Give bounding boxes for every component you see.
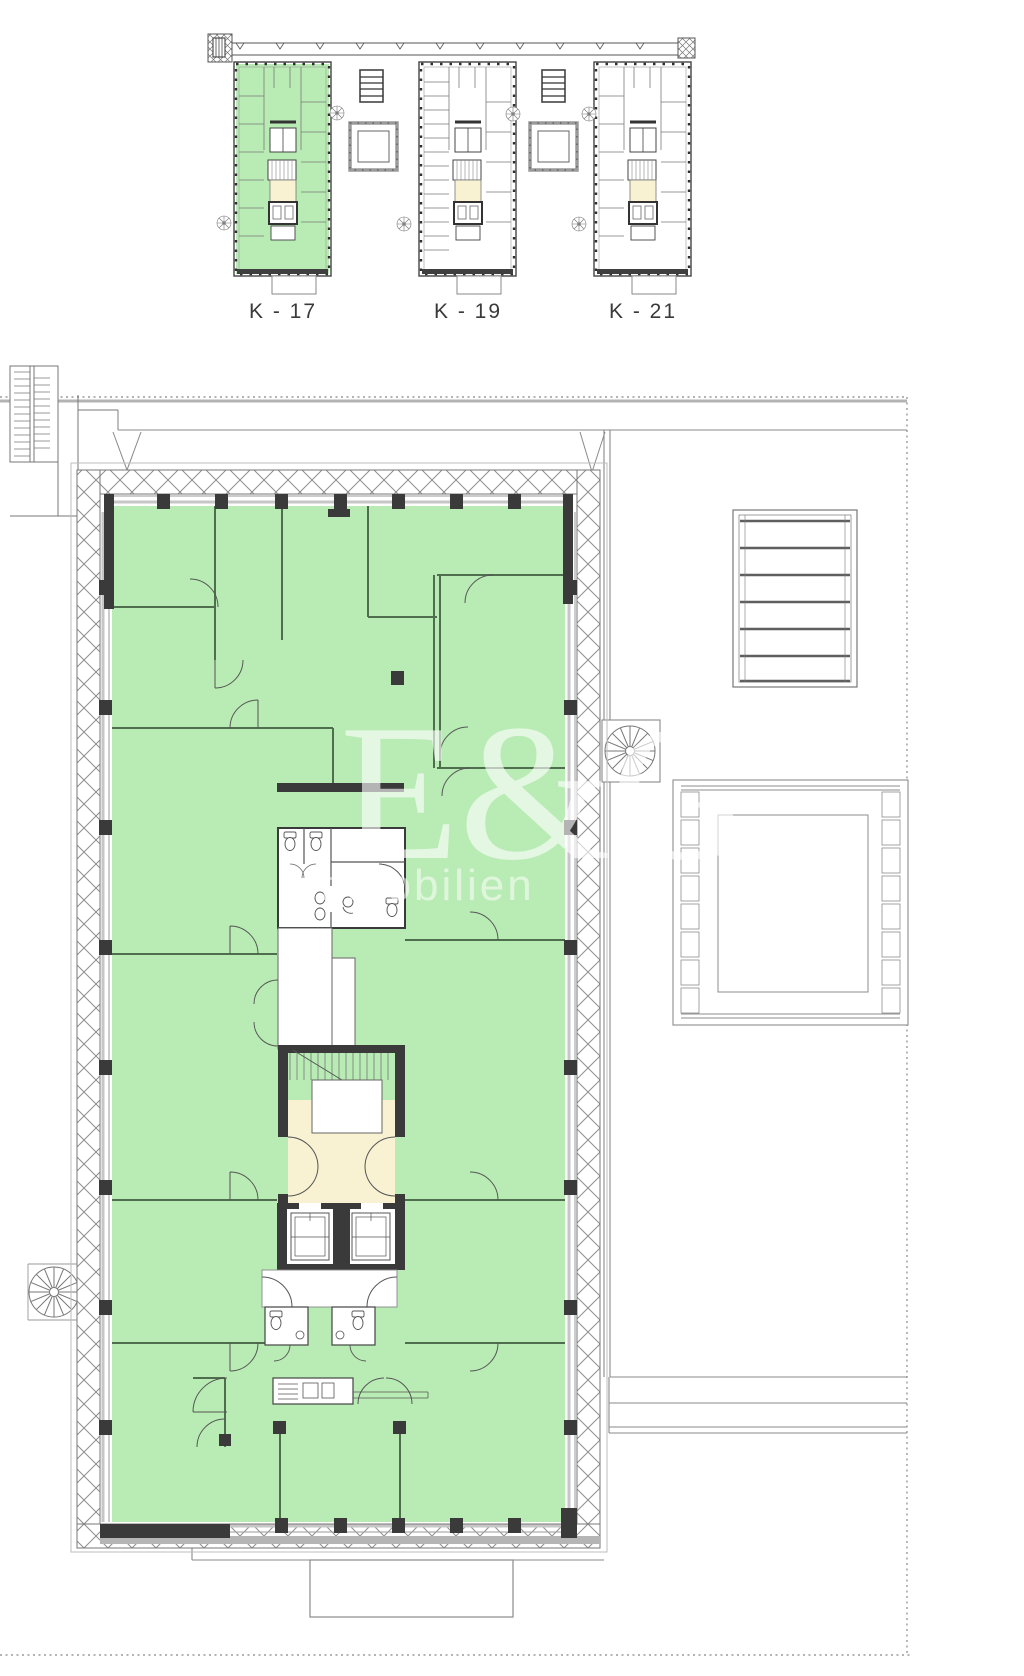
downspout-marker-right <box>580 432 605 472</box>
strip-end-block-left <box>208 34 232 62</box>
skylight-grid <box>733 510 857 687</box>
courtyard-square-1 <box>350 123 397 170</box>
toilet-icon <box>284 832 296 851</box>
wing-k21-miniplan <box>594 62 691 294</box>
elevator-car <box>352 1213 390 1260</box>
toilet-icon <box>270 1311 282 1330</box>
wing-label-k21: K - 21 <box>609 300 677 323</box>
toilet-icon <box>310 832 322 851</box>
courtyard-square-2 <box>530 123 577 170</box>
core-vestibule <box>262 1270 397 1307</box>
wing-k17-miniplan <box>234 62 331 294</box>
entrance-canopy <box>192 1548 604 1617</box>
wing-label-k19: K - 19 <box>434 300 502 323</box>
main-building: 20 STG 17.5/27.0 <box>71 463 607 1552</box>
elevator-block <box>277 1203 405 1270</box>
site-strip <box>210 43 691 55</box>
overview-keyplan: K - 17 K - 19 K - 21 <box>208 34 695 323</box>
downspout-marker-left <box>113 432 141 470</box>
wing-k19-miniplan <box>419 62 516 294</box>
elevator-car <box>291 1213 329 1260</box>
floor-plan-page: K - 17 K - 19 K - 21 <box>0 0 1024 1676</box>
floor-plan-drawing: K - 17 K - 19 K - 21 <box>0 0 1024 1676</box>
watermark-company-text: Immobilien <box>292 861 535 910</box>
connector-ladder-1 <box>360 70 383 102</box>
corner-wall-bottom-right <box>561 1508 577 1538</box>
site-line-upper <box>118 410 907 430</box>
corner-wall-top-left <box>104 494 114 609</box>
connector-ladder-2 <box>542 70 565 102</box>
sink-icon <box>296 1331 304 1339</box>
strip-end-block-right <box>678 38 695 58</box>
sink-icon <box>336 1331 344 1339</box>
corner-wall-top-right <box>563 494 573 604</box>
wing-label-k17: K - 17 <box>249 300 317 323</box>
watermark: E&G Immobilien <box>292 685 752 910</box>
toilet-icon <box>352 1311 364 1330</box>
